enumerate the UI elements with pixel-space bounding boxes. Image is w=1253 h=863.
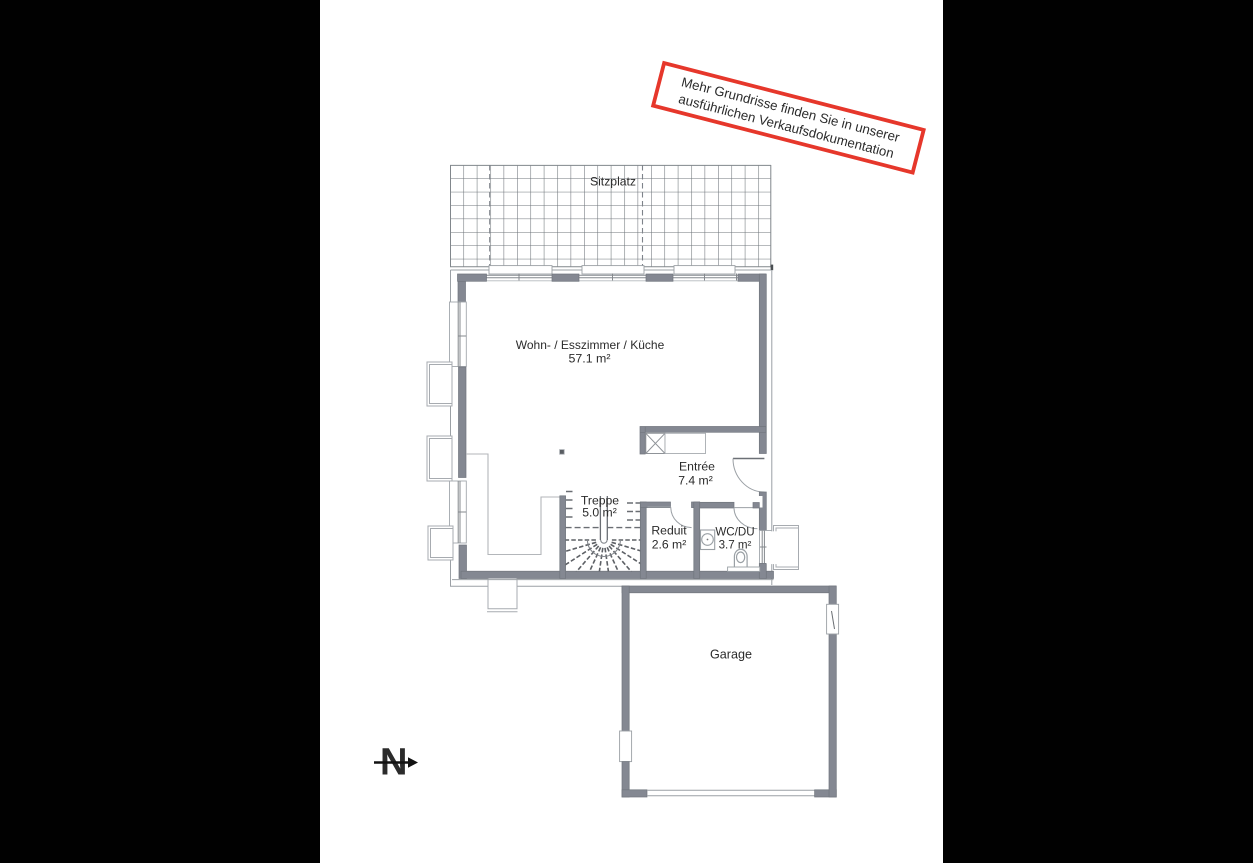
svg-text:2.6 m²: 2.6 m² (652, 538, 687, 552)
svg-text:WC/DU: WC/DU (715, 526, 754, 539)
svg-text:3.7 m²: 3.7 m² (719, 539, 752, 552)
svg-text:5.0 m²: 5.0 m² (582, 506, 617, 520)
svg-text:7.4 m²: 7.4 m² (678, 474, 713, 488)
svg-text:57.1 m²: 57.1 m² (568, 352, 610, 366)
svg-text:Garage: Garage (710, 648, 752, 662)
svg-text:Entrée: Entrée (679, 460, 715, 474)
svg-text:Wohn- / Esszimmer / Küche: Wohn- / Esszimmer / Küche (516, 338, 665, 352)
svg-text:Reduit: Reduit (651, 524, 687, 538)
svg-text:Sitzplatz: Sitzplatz (590, 175, 636, 189)
